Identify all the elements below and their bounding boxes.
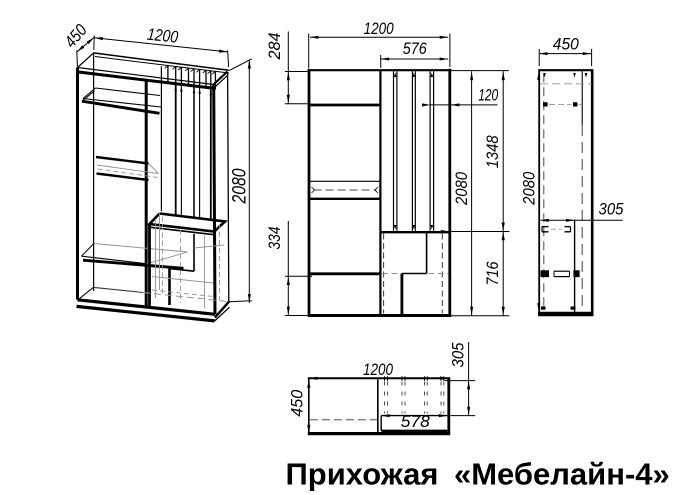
svg-text:305: 305 <box>449 342 468 367</box>
svg-text:2080: 2080 <box>452 172 471 206</box>
svg-text:578: 578 <box>401 412 431 431</box>
svg-text:716: 716 <box>483 261 502 285</box>
svg-text:450: 450 <box>61 20 91 51</box>
svg-text:1200: 1200 <box>364 19 394 38</box>
svg-text:450: 450 <box>553 34 579 53</box>
svg-text:1200: 1200 <box>146 25 179 47</box>
svg-text:576: 576 <box>403 39 427 58</box>
svg-text:450: 450 <box>287 389 306 417</box>
svg-text:1348: 1348 <box>483 135 502 168</box>
svg-text:305: 305 <box>599 199 624 218</box>
svg-text:334: 334 <box>265 227 284 250</box>
svg-text:2080: 2080 <box>520 171 539 205</box>
svg-text:284: 284 <box>265 33 284 61</box>
svg-text:1200: 1200 <box>363 360 393 379</box>
svg-text:120: 120 <box>478 85 498 104</box>
svg-text:2080: 2080 <box>229 168 250 204</box>
svg-text:Прихожая «Мебелайн-4»: Прихожая «Мебелайн-4» <box>286 457 670 492</box>
